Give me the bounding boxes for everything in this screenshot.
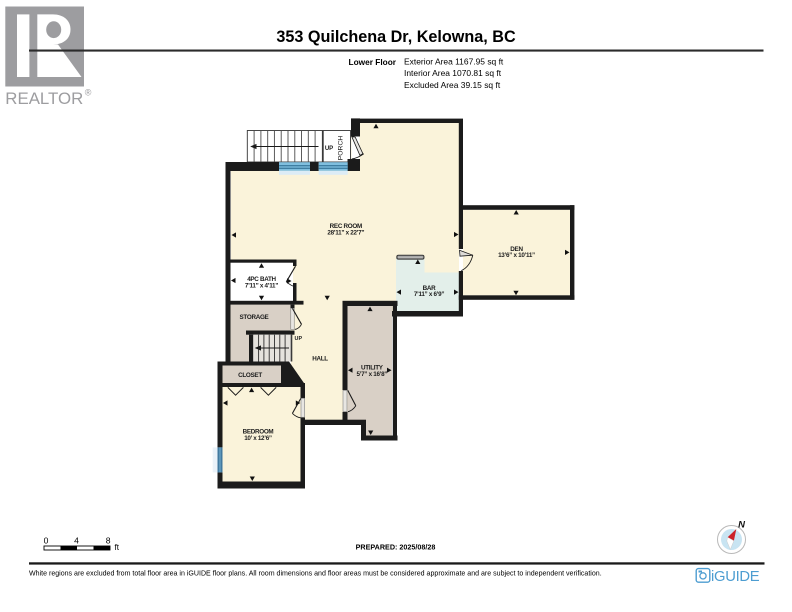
svg-text:Interior Area 1070.81 sq ft: Interior Area 1070.81 sq ft — [404, 68, 502, 78]
svg-text:4: 4 — [74, 536, 79, 546]
svg-text:UP: UP — [325, 146, 333, 152]
svg-text:Lower Floor: Lower Floor — [349, 57, 397, 67]
svg-text:ft: ft — [115, 543, 120, 552]
svg-text:REALTOR: REALTOR — [5, 90, 83, 108]
svg-text:7’11” x 6’9”: 7’11” x 6’9” — [414, 291, 445, 298]
svg-text:8: 8 — [106, 536, 111, 546]
svg-text:PREPARED: 2025/08/28: PREPARED: 2025/08/28 — [356, 543, 436, 552]
svg-text:28’11” x 22’7”: 28’11” x 22’7” — [327, 229, 364, 236]
svg-text:iGUIDE: iGUIDE — [711, 569, 760, 585]
svg-text:UP: UP — [295, 336, 303, 342]
svg-text:7’11” x 4’11”: 7’11” x 4’11” — [245, 283, 278, 290]
svg-text:®: ® — [85, 88, 92, 98]
svg-text:N: N — [738, 520, 746, 531]
svg-text:353 Quilchena Dr, Kelowna, BC: 353 Quilchena Dr, Kelowna, BC — [276, 28, 516, 46]
svg-text:White regions are excluded fro: White regions are excluded from total fl… — [29, 571, 602, 578]
svg-text:10’ x 12’6”: 10’ x 12’6” — [244, 435, 272, 442]
svg-text:13’6” x 10’11”: 13’6” x 10’11” — [498, 252, 535, 259]
svg-text:5’7” x 16’8”: 5’7” x 16’8” — [356, 371, 387, 378]
svg-text:Exterior Area 1167.95 sq ft: Exterior Area 1167.95 sq ft — [404, 56, 504, 66]
svg-text:CLOSET: CLOSET — [238, 372, 262, 379]
svg-text:0: 0 — [44, 536, 49, 546]
svg-text:STORAGE: STORAGE — [240, 314, 269, 321]
svg-text:Excluded Area 39.15 sq ft: Excluded Area 39.15 sq ft — [404, 80, 501, 90]
svg-text:PORCH: PORCH — [338, 136, 345, 161]
svg-text:HALL: HALL — [312, 355, 328, 362]
